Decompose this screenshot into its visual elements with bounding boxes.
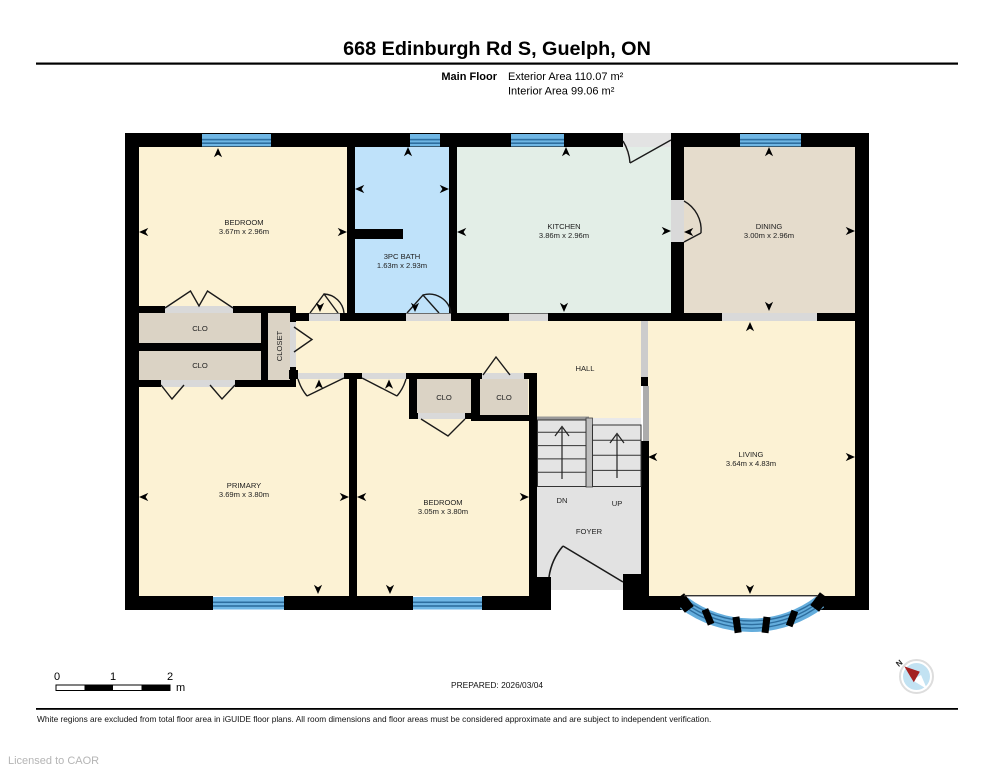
- svg-text:3.86m x 2.96m: 3.86m x 2.96m: [539, 231, 589, 240]
- svg-text:Exterior Area 110.07 m²: Exterior Area 110.07 m²: [508, 71, 624, 83]
- svg-text:White regions are excluded fro: White regions are excluded from total fl…: [37, 714, 711, 724]
- svg-text:2: 2: [167, 671, 173, 683]
- svg-text:CLO: CLO: [436, 393, 452, 402]
- svg-text:PRIMARY: PRIMARY: [227, 481, 261, 490]
- svg-text:UP: UP: [612, 499, 623, 508]
- svg-text:Licensed to CAOR: Licensed to CAOR: [8, 755, 99, 767]
- svg-text:3PC BATH: 3PC BATH: [384, 252, 421, 261]
- svg-text:3.69m x 3.80m: 3.69m x 3.80m: [219, 490, 269, 499]
- svg-text:3.05m x 3.80m: 3.05m x 3.80m: [418, 507, 468, 516]
- svg-text:3.64m x 4.83m: 3.64m x 4.83m: [726, 459, 776, 468]
- svg-text:PREPARED: 2026/03/04: PREPARED: 2026/03/04: [451, 680, 543, 690]
- svg-text:Main Floor: Main Floor: [441, 71, 497, 83]
- svg-text:1.63m x 2.93m: 1.63m x 2.93m: [377, 261, 427, 270]
- svg-text:HALL: HALL: [576, 364, 595, 373]
- svg-text:668 Edinburgh Rd S, Guelph, ON: 668 Edinburgh Rd S, Guelph, ON: [343, 38, 651, 60]
- svg-text:LIVING: LIVING: [739, 450, 764, 459]
- svg-text:BEDROOM: BEDROOM: [423, 498, 462, 507]
- svg-text:3.00m x 2.96m: 3.00m x 2.96m: [744, 231, 794, 240]
- svg-text:Interior Area 99.06 m²: Interior Area 99.06 m²: [508, 86, 615, 98]
- svg-text:KITCHEN: KITCHEN: [547, 222, 580, 231]
- svg-text:1: 1: [110, 671, 116, 683]
- svg-text:3.67m x 2.96m: 3.67m x 2.96m: [219, 227, 269, 236]
- svg-text:BEDROOM: BEDROOM: [224, 218, 263, 227]
- svg-text:0: 0: [54, 671, 60, 683]
- svg-text:CLO: CLO: [192, 361, 208, 370]
- svg-text:CLO: CLO: [496, 393, 512, 402]
- svg-text:DN: DN: [557, 496, 568, 505]
- svg-text:CLO: CLO: [192, 324, 208, 333]
- svg-text:FOYER: FOYER: [576, 527, 603, 536]
- svg-text:m: m: [176, 682, 185, 694]
- svg-text:CLOSET: CLOSET: [275, 330, 284, 361]
- svg-text:DINING: DINING: [756, 222, 783, 231]
